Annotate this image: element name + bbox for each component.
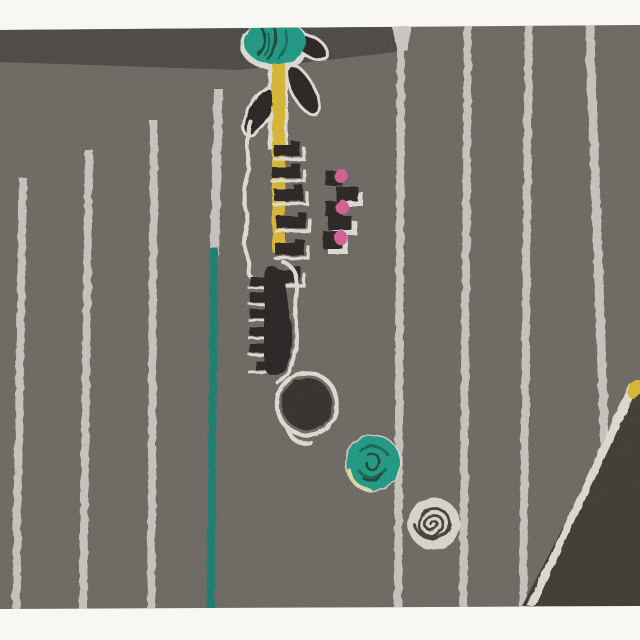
grain-light-overlay (0, 18, 640, 614)
artwork-photo (0, 0, 640, 640)
abstract-print (0, 0, 640, 640)
